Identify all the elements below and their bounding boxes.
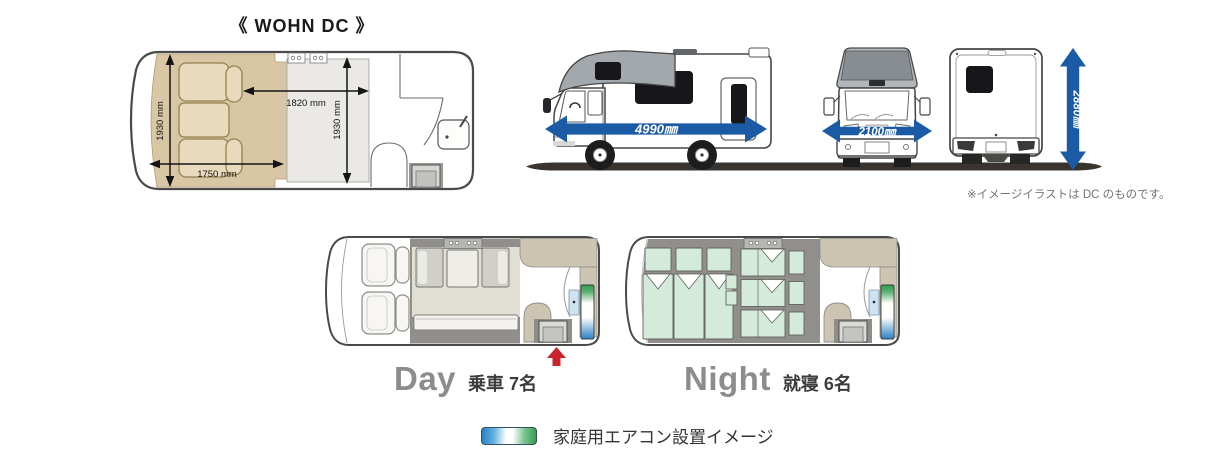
rear-right-wheel: [1010, 154, 1030, 164]
rear-license-plate: [986, 142, 1006, 152]
galley-counter: [444, 239, 482, 249]
length-value: 4990㎜: [634, 122, 679, 137]
license-plate: [865, 142, 889, 153]
night-title: Night: [684, 360, 771, 398]
left-mirror: [824, 96, 840, 115]
side-bench: [414, 315, 518, 330]
left-fog-light: [846, 145, 851, 150]
door-handle-dot: [995, 134, 998, 137]
entry-step: [534, 319, 572, 343]
cap-vent: [869, 80, 885, 86]
aircon-panel: [569, 290, 579, 315]
width-value: 2100㎜: [857, 127, 897, 139]
roof-marker: [988, 51, 1006, 56]
day-title: Day: [394, 360, 456, 398]
height-value: 2880㎜: [1071, 89, 1083, 129]
rv-side-view: 4990㎜: [523, 38, 775, 172]
night-capacity: 就寝 6名: [783, 370, 852, 396]
cab-side-window: [588, 91, 602, 115]
roof-vent: [673, 49, 697, 55]
corner-light-right: [1034, 53, 1036, 55]
room-length-label: 1820 mm: [286, 98, 326, 109]
bed-length-label: 1750 mm: [197, 169, 237, 180]
floorplan-top-view: 1930 mm 1750 mm 1820 mm 1930 mm: [127, 49, 477, 192]
windshield-front: [845, 91, 909, 120]
day-capacity: 乗車 7名: [468, 370, 537, 396]
dinette: [416, 248, 509, 287]
rear-window: [966, 66, 993, 93]
model-title: 《 WOHN DC 》: [127, 12, 477, 38]
galley-counter: [744, 239, 782, 249]
corner-light-left: [956, 53, 958, 55]
overcab-window: [595, 62, 621, 80]
right-mirror: [914, 96, 930, 115]
rear-left-wheel: [962, 154, 982, 164]
rear-door-window: [731, 84, 747, 124]
rv-rear-view: [946, 46, 1050, 170]
night-layout-plan: [618, 235, 903, 367]
height-arrow: 2880㎜: [1056, 46, 1090, 172]
rear-wheel: [687, 140, 717, 170]
room-width-label: 1930 mm: [332, 100, 343, 140]
rv-front-view: 2100㎜: [818, 42, 936, 168]
front-left-wheel: [843, 158, 860, 167]
rear-roof-rack: [749, 48, 769, 57]
day-layout-plan: [318, 235, 603, 367]
aircon-legend: 家庭用エアコン設置イメージ: [481, 423, 774, 448]
aircon-panel: [869, 290, 879, 315]
right-fog-light: [904, 145, 909, 150]
day-caption: Day 乗車 7名: [394, 360, 537, 398]
front-beds: [643, 248, 733, 339]
aircon-unit: [881, 285, 894, 339]
front-right-wheel: [894, 158, 911, 167]
illustration-note: ※イメージイラストは DC のものです。: [967, 186, 1171, 202]
living-room-floor: [287, 59, 369, 182]
sink: [438, 116, 469, 149]
entry-arrow: [547, 347, 566, 366]
night-caption: Night 就寝 6名: [684, 360, 852, 398]
overcab-front-window: [841, 51, 913, 80]
entry-step: [409, 163, 443, 188]
camper-spec-sheet: 《 WOHN DC 》: [0, 0, 1230, 462]
front-wheel: [585, 140, 615, 170]
aircon-unit: [581, 285, 594, 339]
undercarriage: [982, 154, 1010, 162]
bed-width-label: 1930 mm: [155, 101, 166, 141]
aircon-legend-label: 家庭用エアコン設置イメージ: [553, 423, 774, 448]
entry-step: [834, 319, 872, 343]
aircon-gradient-swatch: [481, 427, 537, 445]
